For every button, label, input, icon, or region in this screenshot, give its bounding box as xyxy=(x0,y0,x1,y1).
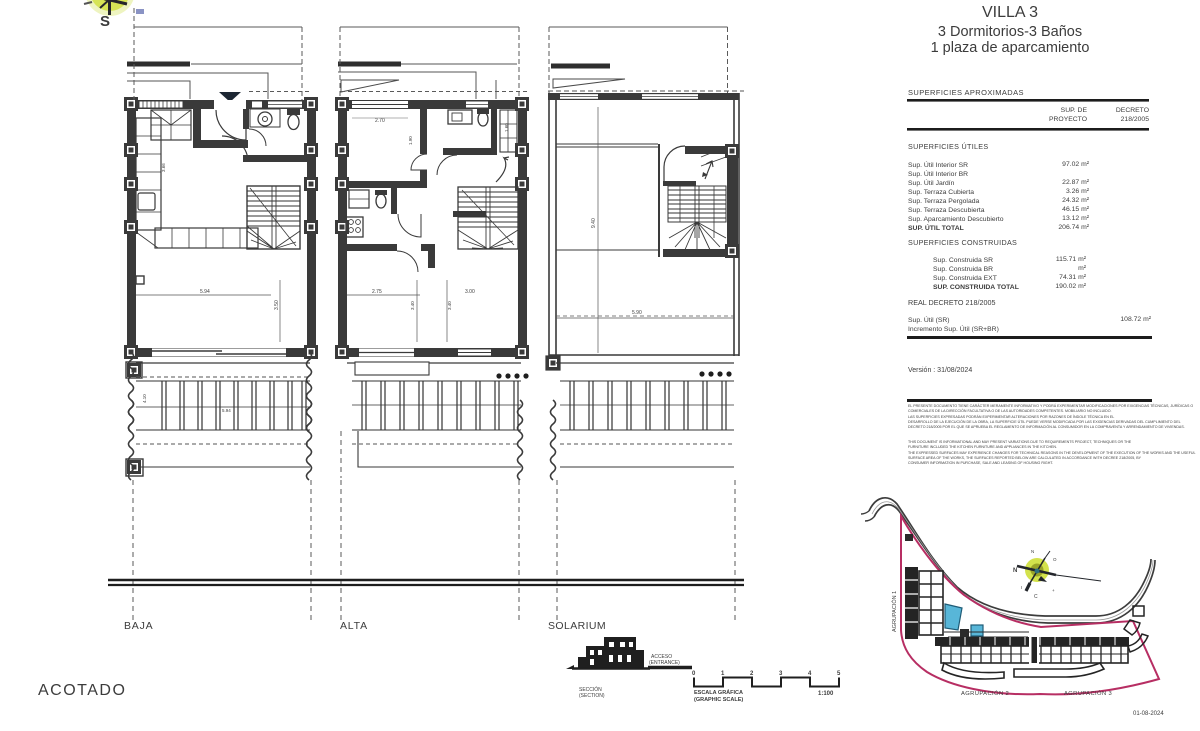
svg-text:3.66: 3.66 xyxy=(161,163,166,172)
svg-text:Versión : 31/08/2024: Versión : 31/08/2024 xyxy=(908,367,972,374)
svg-text:CONSUMER INFORMATION IN PURCHA: CONSUMER INFORMATION IN PURCHASE, SALE A… xyxy=(908,461,1053,465)
svg-text:ALTA: ALTA xyxy=(340,620,368,632)
svg-text:108.72 m²: 108.72 m² xyxy=(1120,316,1151,323)
svg-text:2: 2 xyxy=(750,671,754,677)
svg-text:COMERCIALES DE LA DIRECCIÓN FA: COMERCIALES DE LA DIRECCIÓN FACULTATIVA … xyxy=(908,408,1112,413)
svg-text:AGRUPACIÓN 3: AGRUPACIÓN 3 xyxy=(1064,690,1112,697)
svg-text:ESCALA GRÁFICA: ESCALA GRÁFICA xyxy=(694,689,743,696)
svg-text:1.60: 1.60 xyxy=(504,123,509,132)
svg-text:THE EXPRESSED SURFACES MAY EXP: THE EXPRESSED SURFACES MAY EXPERIENCE CH… xyxy=(908,451,1196,455)
svg-text:5: 5 xyxy=(837,671,841,677)
svg-text:Sup. Construida EXT: Sup. Construida EXT xyxy=(933,275,997,282)
svg-text:Sup. Aparcamiento Descubierto: Sup. Aparcamiento Descubierto xyxy=(908,216,1004,223)
svg-text:SUPERFICIES APROXIMADAS: SUPERFICIES APROXIMADAS xyxy=(908,88,1024,97)
svg-text:BAJA: BAJA xyxy=(124,620,153,632)
svg-text:Sup. Útil Interior BR: Sup. Útil Interior BR xyxy=(908,169,968,178)
svg-text:Sup. Útil Jardín: Sup. Útil Jardín xyxy=(908,178,955,187)
svg-text:Sup. Útil (SR): Sup. Útil (SR) xyxy=(908,315,950,324)
svg-text:SUP. ÚTIL TOTAL: SUP. ÚTIL TOTAL xyxy=(908,223,964,232)
svg-text:01-08-2024: 01-08-2024 xyxy=(1133,711,1164,717)
svg-text:ACOTADO: ACOTADO xyxy=(38,682,126,699)
svg-text:C: C xyxy=(1034,594,1038,600)
svg-text:m²: m² xyxy=(1078,265,1087,272)
svg-text:3.00: 3.00 xyxy=(465,289,475,295)
svg-text:SUPERFICIES ÚTILES: SUPERFICIES ÚTILES xyxy=(908,142,989,151)
svg-text:190.02 m²: 190.02 m² xyxy=(1055,283,1086,290)
svg-text:1:100: 1:100 xyxy=(818,691,834,697)
svg-text:I: I xyxy=(1021,585,1022,590)
svg-text:Sup. Construida SR: Sup. Construida SR xyxy=(933,257,993,264)
svg-text:2.70: 2.70 xyxy=(375,118,385,124)
svg-text:3.26 m²: 3.26 m² xyxy=(1066,188,1090,195)
svg-text:PROYECTO: PROYECTO xyxy=(1049,116,1087,123)
svg-text:115.71 m²: 115.71 m² xyxy=(1056,256,1087,263)
svg-text:13.12 m²: 13.12 m² xyxy=(1062,215,1090,222)
svg-text:5.90: 5.90 xyxy=(632,310,642,316)
svg-text:Sup. Útil Interior SR: Sup. Útil Interior SR xyxy=(908,160,968,169)
svg-text:97.02 m²: 97.02 m² xyxy=(1062,161,1090,168)
svg-text:24.32 m²: 24.32 m² xyxy=(1062,197,1090,204)
svg-text:3: 3 xyxy=(779,671,783,677)
svg-text:5.94: 5.94 xyxy=(200,289,210,295)
svg-text:SUP. CONSTRUIDA TOTAL: SUP. CONSTRUIDA TOTAL xyxy=(933,284,1019,291)
svg-text:SOLARIUM: SOLARIUM xyxy=(548,620,606,632)
svg-text:S: S xyxy=(100,13,110,30)
svg-text:LAS SUPERFICIES EXPRESADAS POD: LAS SUPERFICIES EXPRESADAS PODRÁN EXPERI… xyxy=(908,414,1114,419)
svg-text:206.74 m²: 206.74 m² xyxy=(1058,224,1089,231)
svg-text:REAL DECRETO 218/2005: REAL DECRETO 218/2005 xyxy=(908,298,996,307)
svg-text:FURNITURE INCLUDED THE KITCHEN: FURNITURE INCLUDED THE KITCHEN FURNITURE… xyxy=(908,445,1057,449)
svg-text:1: 1 xyxy=(721,671,725,677)
svg-text:3.40: 3.40 xyxy=(447,301,452,310)
svg-text:Sup. Terraza Descubierta: Sup. Terraza Descubierta xyxy=(908,207,985,214)
svg-text:AGRUPACIÓN 2: AGRUPACIÓN 2 xyxy=(961,690,1009,697)
svg-text:218/2005: 218/2005 xyxy=(1121,116,1150,123)
svg-text:N: N xyxy=(1013,568,1017,574)
svg-text:SUP. DE: SUP. DE xyxy=(1061,107,1088,114)
svg-text:2.75: 2.75 xyxy=(372,289,382,295)
svg-text:5.94: 5.94 xyxy=(222,408,231,413)
svg-text:1.90: 1.90 xyxy=(408,136,413,145)
svg-text:3 Dormitorios-3 Baños: 3 Dormitorios-3 Baños xyxy=(938,24,1082,40)
svg-text:VILLA 3: VILLA 3 xyxy=(982,4,1038,21)
svg-text:46.15 m²: 46.15 m² xyxy=(1062,206,1090,213)
svg-text:3.40: 3.40 xyxy=(410,301,415,310)
svg-text:O: O xyxy=(1053,557,1057,562)
svg-text:Sup. Construida BR: Sup. Construida BR xyxy=(933,266,993,273)
svg-text:(GRAPHIC SCALE): (GRAPHIC SCALE) xyxy=(694,697,743,703)
svg-text:0: 0 xyxy=(692,671,696,677)
svg-text:THIS DOCUMENT IS INFORMATIONAL: THIS DOCUMENT IS INFORMATIONAL AND MAY P… xyxy=(908,440,1132,444)
svg-text:DECRETO 218/2005 POR EL QUE SE: DECRETO 218/2005 POR EL QUE SE APRUEBA E… xyxy=(908,424,1185,429)
svg-text:(SECTION): (SECTION) xyxy=(579,693,605,699)
svg-text:N: N xyxy=(1031,549,1034,554)
svg-text:22.87 m²: 22.87 m² xyxy=(1062,179,1090,186)
svg-text:9.40: 9.40 xyxy=(591,218,597,228)
svg-text:+: + xyxy=(1052,588,1055,593)
svg-text:Sup. Terraza Cubierta: Sup. Terraza Cubierta xyxy=(908,189,974,196)
svg-text:AGRUPACIÓN 1: AGRUPACIÓN 1 xyxy=(891,591,898,632)
svg-text:EL PRESENTE DOCUMENTO TIENE CA: EL PRESENTE DOCUMENTO TIENE CARÁCTER MER… xyxy=(908,403,1193,408)
svg-text:4.10: 4.10 xyxy=(142,394,147,403)
svg-text:SECCIÓN: SECCIÓN xyxy=(579,686,602,693)
svg-text:SUPERFICIES CONSTRUIDAS: SUPERFICIES CONSTRUIDAS xyxy=(908,238,1017,247)
svg-text:1 plaza de aparcamiento: 1 plaza de aparcamiento xyxy=(931,40,1090,56)
svg-text:4: 4 xyxy=(808,671,812,677)
svg-text:(ENTRANCE): (ENTRANCE) xyxy=(649,660,680,666)
svg-text:3.50: 3.50 xyxy=(274,300,280,310)
svg-text:Sup. Terraza Pergolada: Sup. Terraza Pergolada xyxy=(908,198,980,205)
svg-text:DESARROLLO DE LA EJECUCIÓN DE: DESARROLLO DE LA EJECUCIÓN DE LA OBRA, L… xyxy=(908,419,1181,424)
svg-text:DECRETO: DECRETO xyxy=(1116,107,1149,114)
svg-text:74.31 m²: 74.31 m² xyxy=(1059,274,1087,281)
svg-text:SURFACE AREA OF THE WORKS, THE: SURFACE AREA OF THE WORKS, THE SURFACES … xyxy=(908,456,1142,460)
svg-text:Incremento Sup. Útil (SR+BR): Incremento Sup. Útil (SR+BR) xyxy=(908,324,999,333)
